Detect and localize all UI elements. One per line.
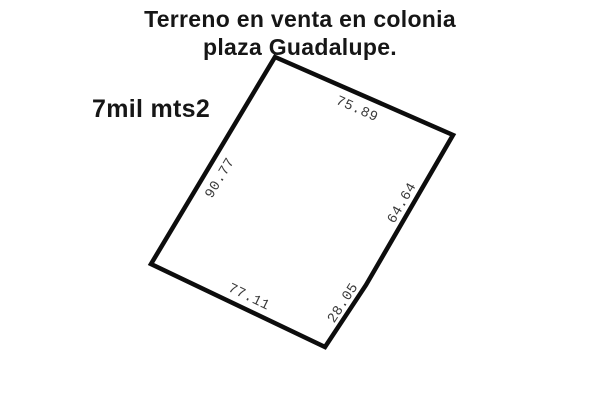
plot-diagram: 75.89 90.77 64.64 28.05 77.11 <box>0 0 600 400</box>
land-listing-image: Terreno en venta en colonia plaza Guadal… <box>0 0 600 400</box>
side-length-left: 90.77 <box>202 155 239 201</box>
